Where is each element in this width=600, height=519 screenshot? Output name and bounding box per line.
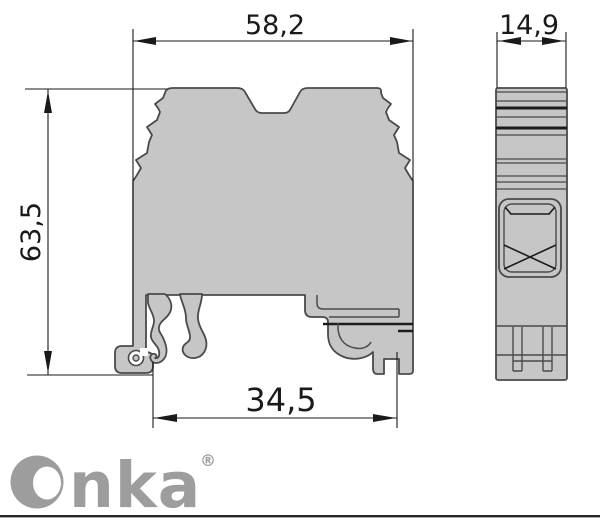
center-clip-finger	[180, 294, 206, 358]
logo-text-tail: nka	[69, 449, 201, 519]
dimension-top-value: 58,2	[245, 10, 305, 41]
front-view	[115, 88, 413, 374]
logo-o-counter	[33, 467, 61, 500]
din-clip-s-hook	[148, 294, 171, 363]
dimension-top-arrow-left	[134, 37, 156, 45]
dimension-bottom-arrow-left	[154, 414, 177, 422]
bottom-rule	[0, 515, 600, 517]
dimension-left-arrow-bottom	[44, 351, 52, 373]
left-foot-channel-opening	[140, 348, 148, 356]
logo-trademark: ®	[200, 451, 216, 470]
dimension-side-value: 14,9	[499, 10, 559, 41]
left-foot-grip-curl	[133, 355, 139, 361]
dimension-bottom-width: 34,5	[153, 352, 397, 428]
dimension-bottom-arrow-right	[373, 414, 396, 422]
side-view	[496, 88, 567, 380]
terminal-block-dimension-drawing: 58,2 63,5 34,5 14,9 nka ®	[0, 0, 600, 519]
brand-logo: nka ®	[11, 449, 217, 519]
dimension-top-arrow-right	[390, 37, 412, 45]
dimension-side-width: 14,9	[497, 10, 566, 88]
dimension-left-value: 63,5	[16, 202, 47, 262]
dimension-left-arrow-top	[44, 91, 52, 113]
dimension-bottom-value: 34,5	[245, 381, 316, 419]
technical-drawing-canvas: 58,2 63,5 34,5 14,9 nka ®	[0, 0, 600, 519]
